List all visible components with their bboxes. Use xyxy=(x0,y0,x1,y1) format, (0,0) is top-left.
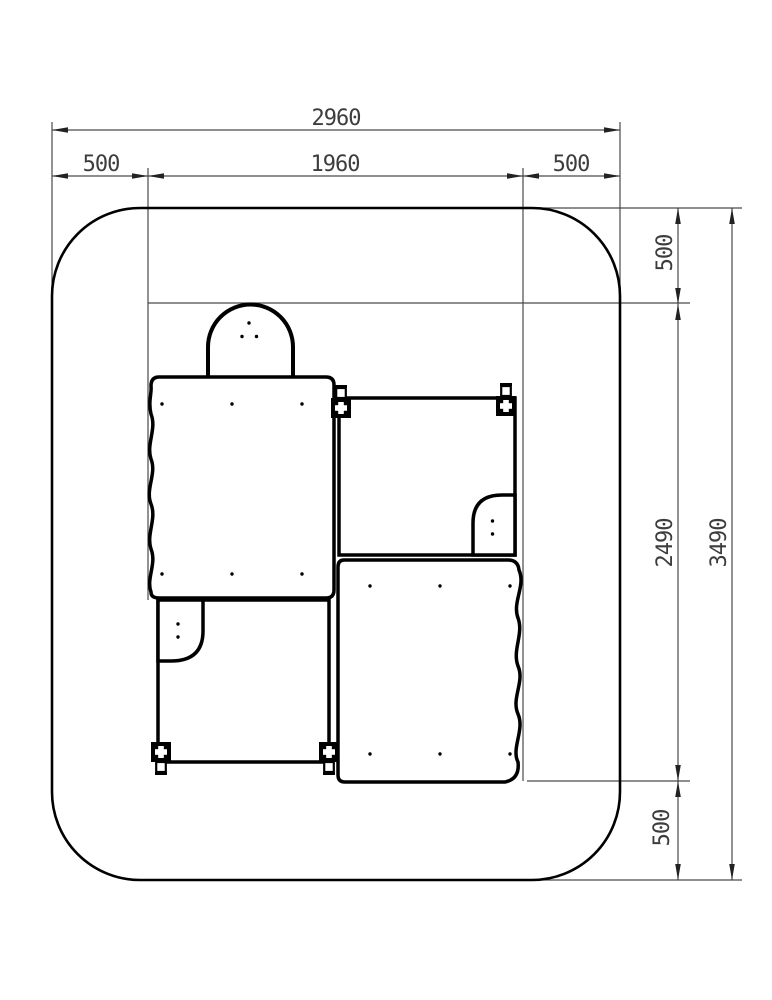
corner-clamp xyxy=(151,742,171,775)
bolt-hole xyxy=(160,402,163,405)
bolt-hole xyxy=(438,752,441,755)
dimension-arrow xyxy=(604,173,620,179)
left-play-panel xyxy=(149,377,334,598)
cad-sheet: 2960 500 1960 500 500 2490 500 3490 xyxy=(0,0,772,1000)
dimension-arrow xyxy=(675,288,681,304)
dimension-arrow xyxy=(52,127,68,133)
bolt-hole xyxy=(160,572,163,575)
bolt-hole xyxy=(300,572,303,575)
corner-clamp xyxy=(319,742,339,775)
dimension-arrow xyxy=(729,864,735,880)
bolt-hole xyxy=(176,635,179,638)
bolt-hole xyxy=(438,584,441,587)
dimension-arrow xyxy=(148,173,164,179)
bolt-hole xyxy=(508,584,511,587)
bolt-hole xyxy=(255,335,258,338)
dimension-arrow xyxy=(675,208,681,224)
dimension-arrow xyxy=(604,127,620,133)
dim-label-top-total: 2960 xyxy=(312,106,361,131)
dimension-arrow xyxy=(523,173,539,179)
corner-clamp xyxy=(496,383,516,416)
arch-tunnel xyxy=(208,305,293,378)
dim-label-right-span: 2490 xyxy=(653,519,678,568)
bottom-right-play-panel xyxy=(338,560,521,782)
dim-label-right-top: 500 xyxy=(653,235,678,272)
dim-label-right-bottom: 500 xyxy=(650,810,675,847)
curved-seat-panel-right xyxy=(473,495,515,555)
bolt-hole xyxy=(491,519,494,522)
dimension-arrow xyxy=(675,864,681,880)
dimension-arrow xyxy=(675,781,681,797)
dimension-arrow xyxy=(729,208,735,224)
dimension-arrow xyxy=(507,173,523,179)
dimension-arrow xyxy=(132,173,148,179)
dim-label-top-span: 1960 xyxy=(311,152,360,177)
bolt-hole xyxy=(368,752,371,755)
technical-drawing-canvas: 2960 500 1960 500 500 2490 500 3490 xyxy=(0,0,772,1000)
dimension-arrow xyxy=(675,304,681,320)
bolt-hole xyxy=(240,335,243,338)
dimension-arrow xyxy=(52,173,68,179)
bolt-hole xyxy=(176,622,179,625)
safety-zone-boundary xyxy=(52,208,620,880)
dim-label-top-left: 500 xyxy=(83,152,120,177)
dimension-arrow xyxy=(675,765,681,781)
bolt-hole xyxy=(247,321,250,324)
bolt-hole xyxy=(230,402,233,405)
bolt-hole xyxy=(508,752,511,755)
bolt-hole xyxy=(230,572,233,575)
bolt-hole xyxy=(491,532,494,535)
dim-label-right-total: 3490 xyxy=(707,519,732,568)
dim-label-top-right: 500 xyxy=(553,152,590,177)
bolt-hole xyxy=(300,402,303,405)
curved-seat-panel-left xyxy=(158,600,203,661)
bolt-hole xyxy=(368,584,371,587)
